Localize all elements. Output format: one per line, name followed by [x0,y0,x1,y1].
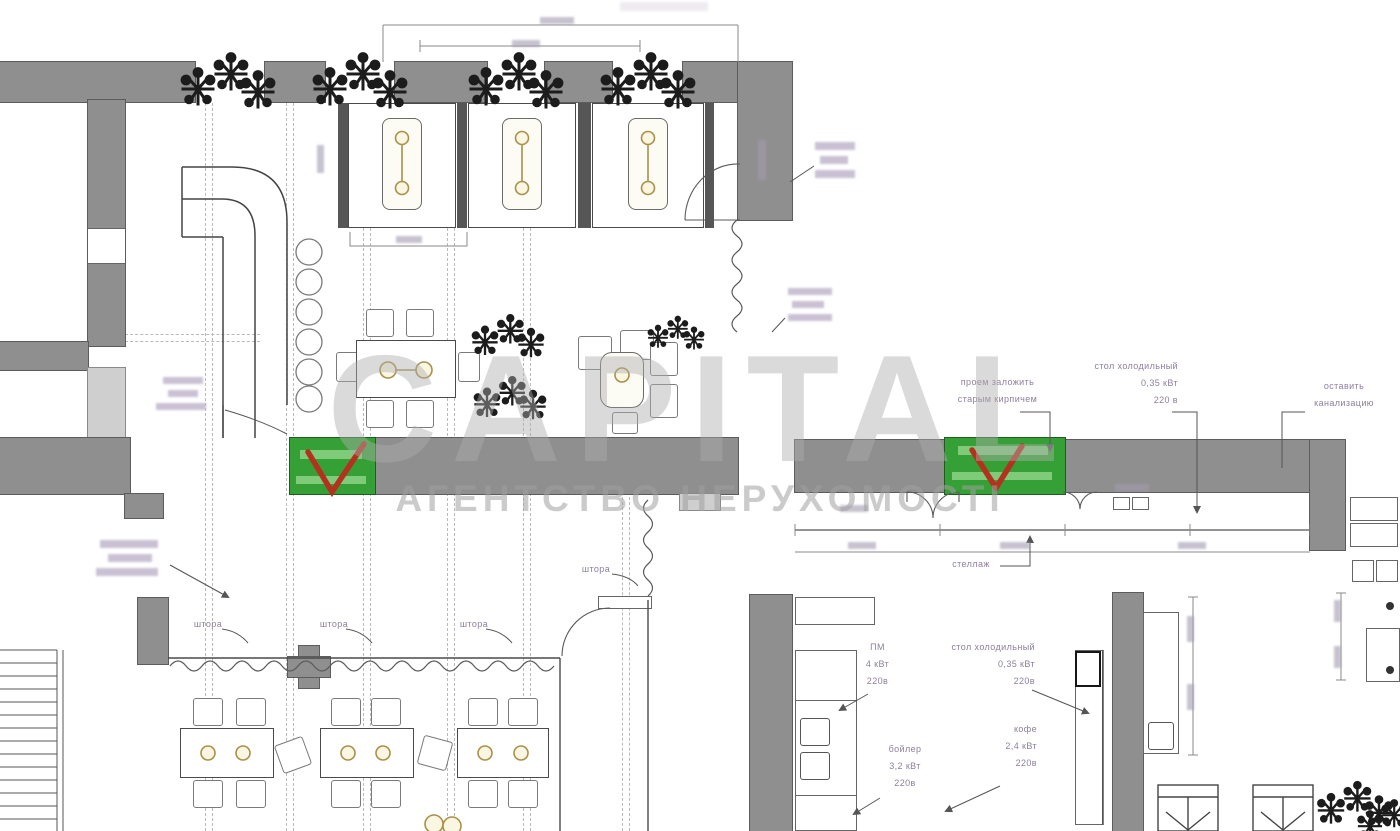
bar-counter [182,167,287,438]
blur-dim [1000,542,1030,549]
shelf-box [1352,560,1374,582]
blur-dim [540,17,574,24]
blur-faint [620,2,708,11]
bay-table [502,118,542,210]
wall-pier-lower [138,598,168,664]
sink [1148,722,1174,750]
wall-middle [375,438,738,494]
blur-dim [1178,542,1206,549]
label-fridge-table-top: стол холодильный 0,35 кВт 220 в [1058,362,1178,413]
blur-dim [758,140,766,180]
shelf-box [1350,523,1398,547]
bay-pier [338,103,348,228]
chair [236,698,266,726]
chair [468,780,498,808]
label-keep-sewer: оставить канализацию [1298,382,1390,416]
wall-left-stub [0,342,88,370]
wall-corner-right [1310,440,1345,550]
blur-dim [848,542,876,549]
blur-dim [512,40,540,47]
blur-dim [1334,600,1341,622]
blur-note [96,568,158,576]
dining-table [457,728,549,778]
shelf-box [1350,497,1398,521]
chair [236,780,266,808]
wall-corridor [750,595,792,831]
bay-table [628,118,668,210]
wall-pier [680,494,720,510]
corner-table [1366,628,1400,682]
blur-note [815,142,855,150]
door-opening [88,228,125,264]
chair [508,698,538,726]
blur-dim [1187,616,1194,642]
blur-note [820,156,848,164]
label-brick-opening: проем заложить старым кирпичем [925,378,1070,412]
chair [468,698,498,726]
blur-dim [1187,684,1194,710]
wall-middle [1065,440,1310,492]
zone-stripe [300,450,362,459]
column-cross [288,657,330,677]
equipment-box [1132,497,1149,510]
wall-middle [0,438,130,494]
bay-pier [578,103,591,228]
blur-dim [317,145,324,173]
chair [331,698,361,726]
wall-top [395,62,487,102]
wall-left [88,100,125,346]
floor-plan: проем заложить старым кирпичем стол холо… [0,0,1400,831]
dining-table [356,340,456,398]
wall-kitchen-divider [1113,593,1143,831]
window-left [88,368,125,438]
blur-dim [1115,484,1149,491]
label-curtain-3: штора [456,620,492,630]
dining-table [320,728,414,778]
wall-top [265,62,325,102]
counter-divider [795,700,857,701]
grid-line [125,334,260,342]
chair [371,780,401,808]
label-boiler: бойлер 3,2 кВт 220в [875,745,935,796]
sink [800,718,830,746]
chair [366,309,394,337]
highlight-zone-1 [290,438,375,494]
blur-dim [1334,646,1341,668]
shelf-box [1376,560,1398,582]
blur-dim [396,236,422,243]
chair [406,400,434,428]
label-shelf: стеллаж [942,560,1000,570]
side-table [612,412,638,434]
zone-stripe [296,476,366,484]
chair [336,352,358,382]
equipment-box [1113,497,1130,510]
refrigerator [1075,651,1101,687]
stairs [0,650,63,831]
chair [274,736,312,774]
wall-top [0,62,195,102]
dining-table [180,728,274,778]
kitchen-table [795,597,875,625]
blur-note [108,554,152,562]
blur-note [100,540,158,548]
chair [508,780,538,808]
chair [193,698,223,726]
blur-note [788,288,832,295]
sink [800,752,830,780]
label-coffee: кофе 2,4 кВт 220в [975,725,1037,776]
armchair [650,342,678,376]
counter-divider [795,795,857,796]
bay-table [382,118,422,210]
blur-note [156,403,206,410]
bay-pier [705,103,714,228]
bay-pier [457,103,467,228]
chair [366,400,394,428]
label-curtain-4: штора [578,565,614,575]
zone-stripe [952,472,1052,480]
blur-note [815,170,855,178]
chair [331,780,361,808]
label-fridge-table-kitchen: стол холодильный 0,35 кВт 220в [925,643,1035,694]
wall-top [545,62,612,102]
wall-middle [795,440,945,492]
armchair [650,384,678,418]
lounge-table [600,352,644,408]
grid-line [622,497,630,831]
chair [458,352,480,382]
blur-dim [840,505,868,512]
label-dishwasher: ПМ 4 кВт 220в [850,643,905,694]
bar-stools [296,239,322,412]
blur-note [163,377,203,384]
chair [406,309,434,337]
chair [371,698,401,726]
wall-pier [125,494,163,518]
door-panel [598,596,652,609]
blur-note [788,314,832,321]
storage-racks [1158,785,1313,831]
chair [193,780,223,808]
blur-note [168,390,198,397]
blur-note [792,301,824,308]
label-curtain-2: штора [316,620,352,630]
zone-stripe [958,446,1048,455]
label-curtain-1: штора [190,620,226,630]
